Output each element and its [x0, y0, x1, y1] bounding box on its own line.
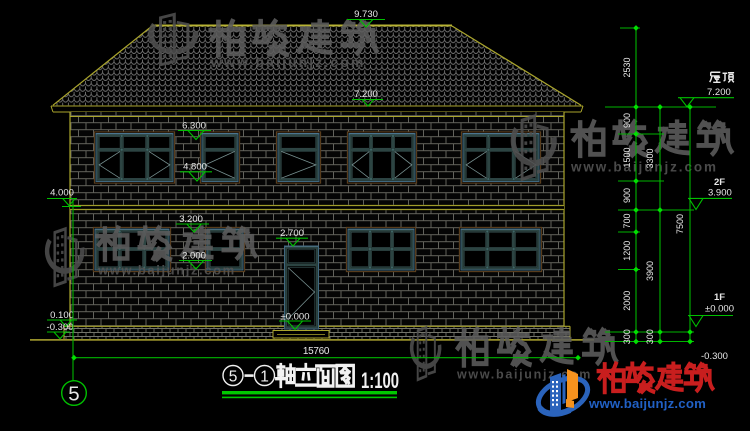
svg-text:5: 5 — [68, 382, 79, 405]
svg-text:1: 1 — [260, 368, 269, 385]
svg-text:900: 900 — [622, 188, 632, 203]
svg-text:-0.300: -0.300 — [701, 351, 728, 362]
svg-text:1500: 1500 — [622, 147, 632, 167]
svg-text:1:100: 1:100 — [361, 368, 399, 393]
svg-text:www.baijunjz.com: www.baijunjz.com — [588, 396, 706, 411]
svg-text:1F: 1F — [714, 292, 725, 303]
svg-text:0.100: 0.100 — [50, 310, 74, 321]
svg-text:3300: 3300 — [645, 148, 655, 168]
svg-text:2530: 2530 — [622, 57, 632, 77]
svg-text:7.200: 7.200 — [354, 89, 378, 100]
svg-text:4.000: 4.000 — [50, 188, 74, 199]
svg-text:2F: 2F — [714, 177, 725, 188]
svg-text:15760: 15760 — [303, 346, 330, 357]
svg-text:3.200: 3.200 — [179, 214, 203, 225]
svg-text:700: 700 — [622, 213, 632, 228]
svg-text:7500: 7500 — [675, 214, 685, 234]
svg-text:www.baijunjz.com: www.baijunjz.com — [97, 263, 236, 278]
svg-text:www.baijunjz.com: www.baijunjz.com — [210, 54, 365, 70]
svg-text:www.baijunjz.com: www.baijunjz.com — [570, 160, 718, 175]
svg-text:±0.000: ±0.000 — [705, 304, 734, 315]
svg-text:9.730: 9.730 — [354, 9, 378, 20]
svg-text:300: 300 — [645, 329, 655, 344]
svg-text:5: 5 — [229, 368, 238, 385]
svg-text:3900: 3900 — [645, 261, 655, 281]
svg-text:4.800: 4.800 — [183, 162, 207, 173]
svg-text:7.200: 7.200 — [707, 87, 731, 98]
svg-text:2000: 2000 — [622, 291, 632, 311]
svg-text:2.700: 2.700 — [280, 228, 304, 239]
svg-text:-0.300: -0.300 — [47, 322, 74, 333]
svg-text:6.300: 6.300 — [182, 121, 206, 132]
svg-text:300: 300 — [622, 329, 632, 344]
svg-text:1200: 1200 — [622, 241, 632, 261]
svg-text:900: 900 — [622, 113, 632, 128]
svg-text:2.000: 2.000 — [182, 251, 206, 262]
svg-text:3.900: 3.900 — [708, 188, 732, 199]
